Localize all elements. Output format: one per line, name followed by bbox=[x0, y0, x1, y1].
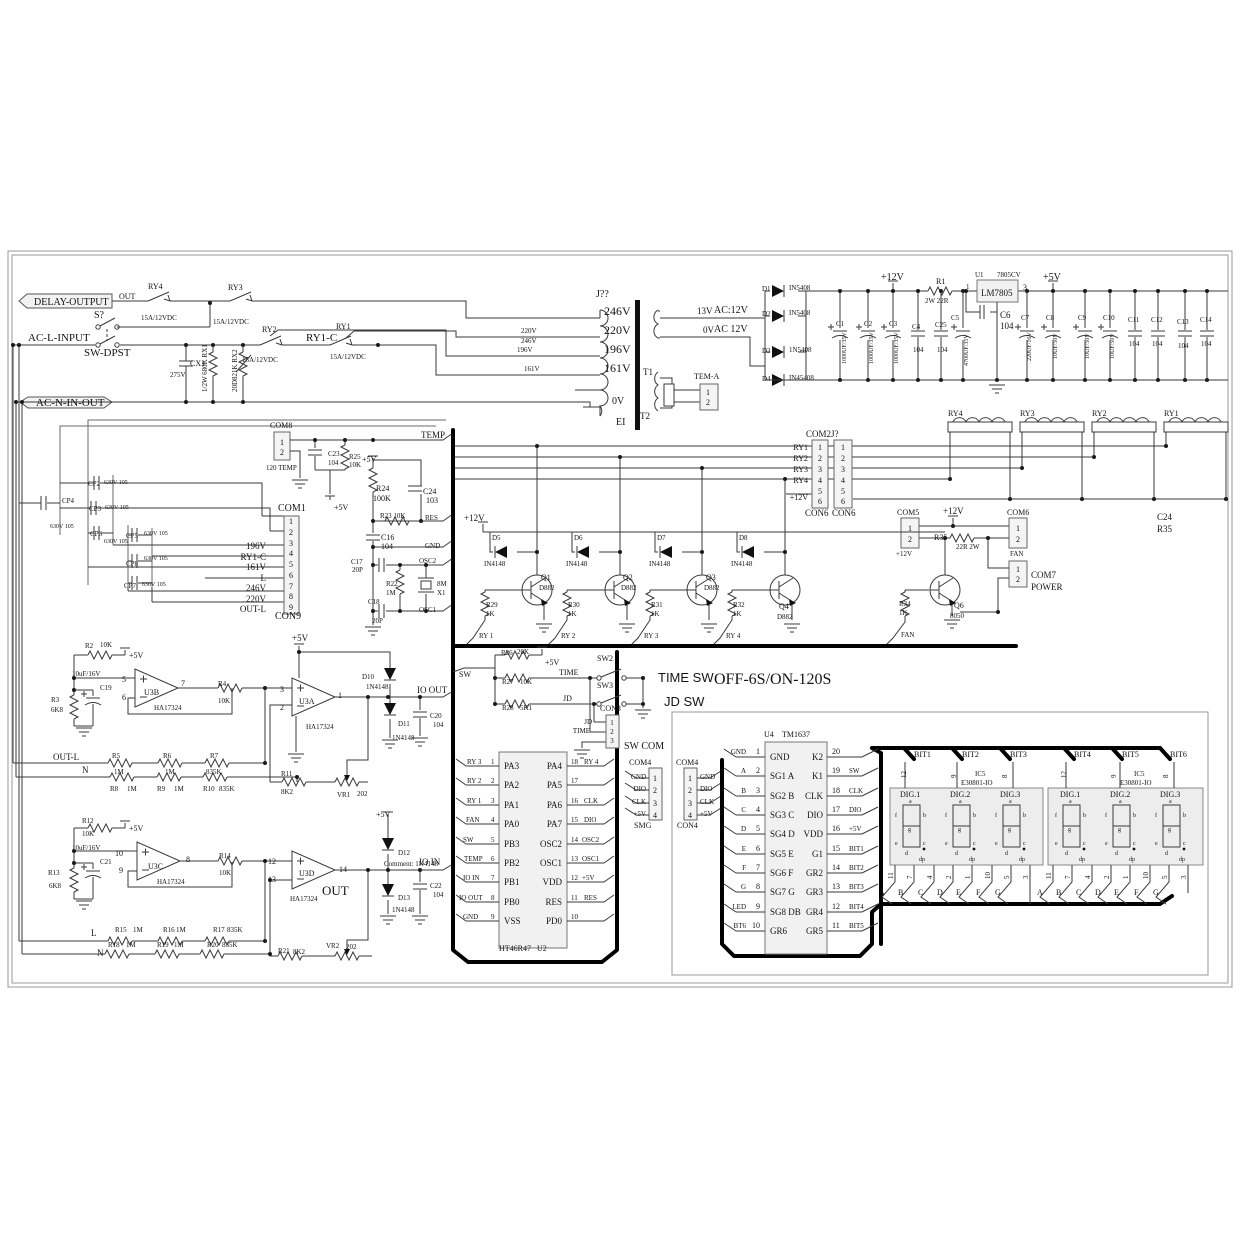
schematic-label: U1 bbox=[975, 271, 984, 279]
schematic-label: POWER bbox=[1031, 582, 1063, 592]
schematic-label: G bbox=[995, 888, 1001, 897]
schematic-label: 6 bbox=[818, 497, 822, 506]
schematic-label: 0V bbox=[612, 396, 625, 407]
schematic-label: 18 bbox=[832, 786, 840, 795]
schematic-label: e bbox=[945, 841, 948, 847]
schematic-label: 4 bbox=[926, 875, 934, 879]
junction-dot bbox=[263, 939, 267, 943]
schematic-label: GR4 bbox=[806, 907, 824, 917]
schematic-label: R35 bbox=[1157, 524, 1173, 534]
schematic-label: 12 bbox=[268, 857, 276, 866]
schematic-label: e bbox=[995, 841, 998, 847]
schematic-label: CP4 bbox=[62, 497, 75, 505]
schematic-label: 4 bbox=[688, 811, 692, 820]
schematic-label: 15 bbox=[571, 816, 579, 824]
schematic-label: D bbox=[937, 888, 943, 897]
schematic-label: GND bbox=[631, 773, 646, 781]
schematic-label: Q2 bbox=[623, 573, 633, 582]
schematic-label: 3 bbox=[610, 737, 614, 745]
schematic-label: AC-N-IN-OUT bbox=[36, 397, 105, 409]
schematic-label: 1 bbox=[338, 691, 342, 700]
schematic-label: 5 bbox=[289, 560, 293, 569]
schematic-label: +5V bbox=[129, 651, 144, 660]
schematic-label: 1 bbox=[289, 517, 293, 526]
schematic-label: 8K2 bbox=[281, 788, 294, 796]
schematic-label: RY2 bbox=[793, 454, 808, 463]
junction-dot bbox=[493, 702, 497, 706]
schematic-label: OSC1 bbox=[582, 855, 600, 863]
schematic-label: IN5408 bbox=[789, 309, 811, 317]
junction-dot bbox=[376, 343, 380, 347]
junction-dot bbox=[398, 563, 402, 567]
schematic-label: 630V 105 bbox=[144, 556, 168, 562]
schematic-label: GND bbox=[463, 913, 478, 921]
schematic-label: D882 bbox=[621, 584, 637, 592]
schematic-label: IC5 bbox=[975, 770, 986, 778]
schematic-label: 20P bbox=[372, 617, 383, 625]
schematic-label: DELAY-OUTPUT bbox=[34, 297, 109, 308]
schematic-label: HA17324 bbox=[306, 723, 334, 731]
junction-dot bbox=[11, 343, 15, 347]
schematic-label: EI bbox=[616, 417, 625, 428]
junction-dot bbox=[783, 550, 787, 554]
schematic-label: 9 bbox=[756, 902, 760, 911]
schematic-label: 1K bbox=[486, 610, 495, 618]
schematic-label: dp bbox=[1179, 857, 1185, 863]
schematic-label: 10 bbox=[984, 872, 992, 880]
schematic-label: 3 bbox=[1180, 875, 1188, 879]
schematic-label: 2 bbox=[818, 454, 822, 463]
schematic-label: Q6 bbox=[954, 601, 964, 610]
schematic-label: E bbox=[742, 845, 746, 853]
junction-dot bbox=[72, 849, 76, 853]
schematic-label: IC5 bbox=[1134, 770, 1145, 778]
schematic-label: E bbox=[1114, 888, 1119, 897]
schematic-label: COM8 bbox=[270, 421, 292, 430]
schematic-label: 13 bbox=[571, 855, 579, 863]
schematic-label: DIO bbox=[807, 810, 823, 820]
junction-dot bbox=[1051, 289, 1055, 293]
schematic-label: PA0 bbox=[504, 819, 520, 829]
schematic-label: DIG.1 bbox=[900, 790, 920, 799]
schematic-label: 7 bbox=[756, 863, 760, 872]
schematic-label: X1 bbox=[437, 589, 446, 597]
schematic-label: SG1 A bbox=[770, 771, 795, 781]
schematic-label: 1M bbox=[126, 941, 137, 949]
junction-dot bbox=[1108, 289, 1112, 293]
schematic-label: 14 bbox=[571, 836, 579, 844]
schematic-label: a bbox=[1119, 799, 1122, 805]
schematic-label: BIT6 bbox=[1170, 750, 1187, 759]
schematic-label: 5 bbox=[491, 836, 495, 844]
schematic-label: C3 bbox=[889, 320, 898, 328]
schematic-label: 246V bbox=[521, 337, 537, 345]
schematic-label: 16 bbox=[571, 797, 579, 805]
schematic-label: GND bbox=[731, 748, 746, 756]
schematic-label: RY 1 bbox=[479, 632, 494, 640]
schematic-label: 2 bbox=[688, 786, 692, 795]
schematic-label: 2 bbox=[908, 535, 912, 544]
schematic-label: 8 bbox=[1162, 774, 1170, 778]
schematic-label: CLK bbox=[849, 787, 863, 795]
schematic-label: 10K bbox=[349, 461, 361, 469]
schematic-label: COM2J? bbox=[806, 429, 839, 439]
schematic-label: CON3 bbox=[600, 704, 621, 713]
junction-dot bbox=[1020, 466, 1024, 470]
schematic-label: 16 bbox=[832, 824, 840, 833]
junction-dot bbox=[211, 400, 215, 404]
schematic-label: U3B bbox=[144, 688, 159, 697]
schematic-label: G bbox=[1153, 888, 1159, 897]
schematic-label: C bbox=[741, 806, 746, 814]
schematic-label: 1000UF/35V bbox=[842, 332, 848, 364]
schematic-label: 10UF/50V bbox=[1110, 333, 1116, 359]
junction-dot bbox=[943, 536, 947, 540]
schematic-label: 1N5408 bbox=[789, 346, 812, 354]
schematic-label: HT46R47 bbox=[499, 944, 531, 953]
schematic-label: 10 bbox=[115, 849, 123, 858]
schematic-label: 20D821K RX2 bbox=[231, 349, 239, 392]
schematic-label: RY4 bbox=[793, 476, 808, 485]
schematic-label: D5 bbox=[492, 534, 501, 542]
schematic-label: RY4 bbox=[148, 282, 163, 291]
schematic-label: GND bbox=[770, 752, 790, 762]
junction-dot bbox=[366, 868, 370, 872]
schematic-label: B bbox=[898, 888, 903, 897]
schematic-label: C10 bbox=[1103, 314, 1115, 322]
junction-dot bbox=[386, 695, 390, 699]
schematic-label: 7 bbox=[491, 874, 495, 882]
schematic-label: RY1 bbox=[336, 322, 351, 331]
schematic-label: e bbox=[1055, 841, 1058, 847]
schematic-label: g bbox=[1008, 827, 1011, 833]
schematic-label: BIT4 bbox=[1074, 750, 1091, 759]
schematic-label: T2 bbox=[640, 411, 650, 421]
schematic-label: 14 bbox=[832, 863, 840, 872]
schematic-label: +5V bbox=[582, 874, 595, 882]
schematic-label: 10K bbox=[82, 830, 94, 838]
schematic-label: 630V 105 bbox=[144, 531, 168, 537]
schematic-label: 2W 22R bbox=[925, 297, 949, 305]
schematic-label: A bbox=[1037, 888, 1043, 897]
schematic-label: b bbox=[1083, 813, 1086, 819]
schematic-label: g bbox=[1068, 827, 1071, 833]
schematic-label: R14 bbox=[219, 852, 231, 860]
schematic-label: RY 1 bbox=[467, 797, 482, 805]
schematic-label: D11 bbox=[398, 720, 410, 728]
schematic-label: JD bbox=[584, 718, 592, 726]
schematic-label: 1N4148 bbox=[392, 906, 415, 914]
schematic-label: 1/2W 680K RX1 bbox=[201, 344, 209, 392]
schematic-label: BIT3 bbox=[1010, 750, 1027, 759]
schematic-label: OUT bbox=[322, 883, 349, 898]
schematic-label: PB2 bbox=[504, 858, 520, 868]
schematic-label: PA4 bbox=[547, 761, 563, 771]
schematic-label: 6 bbox=[122, 693, 126, 702]
schematic-label: CP7 bbox=[124, 582, 137, 590]
junction-dot bbox=[618, 550, 622, 554]
junction-dot bbox=[1224, 497, 1228, 501]
schematic-label: 13 bbox=[832, 882, 840, 891]
schematic-label: 630V 105 bbox=[50, 524, 74, 530]
schematic-label: OSC1 bbox=[419, 606, 437, 614]
schematic-label: 5 bbox=[1161, 875, 1169, 879]
schematic-label: TEMP bbox=[464, 855, 483, 863]
schematic-label: RY 3 bbox=[644, 632, 659, 640]
schematic-label: VR1 bbox=[337, 791, 351, 799]
junction-dot bbox=[72, 861, 76, 865]
schematic-label: 1M bbox=[165, 768, 176, 776]
schematic-label: +12V bbox=[896, 550, 912, 558]
schematic-label: R34 bbox=[899, 600, 911, 608]
junction-dot bbox=[1083, 289, 1087, 293]
schematic-label: 11 bbox=[1045, 872, 1053, 879]
schematic-label: TIME SW bbox=[658, 670, 714, 685]
schematic-label: 5 bbox=[1003, 875, 1011, 879]
schematic-label: 161V bbox=[246, 562, 267, 572]
junction-dot bbox=[964, 289, 968, 293]
schematic-label: c bbox=[1133, 841, 1136, 847]
schematic-label: e bbox=[1105, 841, 1108, 847]
junction-dot bbox=[366, 695, 370, 699]
schematic-label: 1K bbox=[568, 610, 577, 618]
schematic-label: 1 bbox=[964, 875, 972, 879]
schematic-label: JD SW bbox=[664, 694, 705, 709]
schematic-label: D6 bbox=[574, 534, 583, 542]
schematic-label: 246V bbox=[246, 583, 267, 593]
schematic-label: HA17324 bbox=[154, 704, 182, 712]
schematic-label: c bbox=[923, 841, 926, 847]
schematic-label: SW3 bbox=[597, 681, 613, 690]
schematic-label: SG4 D bbox=[770, 829, 795, 839]
junction-dot bbox=[263, 761, 267, 765]
schematic-label: 7 bbox=[906, 875, 914, 879]
schematic-label: 104 bbox=[1152, 340, 1163, 348]
schematic-label: d bbox=[1065, 851, 1068, 857]
schematic-label: SW COM bbox=[624, 741, 664, 752]
junction-dot bbox=[1133, 378, 1137, 382]
schematic-label: A bbox=[741, 767, 746, 775]
schematic-label: T1 bbox=[643, 367, 653, 377]
schematic-label: SG7 G bbox=[770, 887, 795, 897]
junction-dot bbox=[268, 878, 272, 882]
schematic-label: f bbox=[895, 812, 897, 819]
schematic-label: +5V bbox=[334, 503, 349, 512]
schematic-label: C14 bbox=[1200, 316, 1212, 324]
schematic-label: C4 bbox=[912, 323, 921, 331]
schematic-label: C2 bbox=[864, 320, 873, 328]
schematic-label: CLK bbox=[584, 797, 598, 805]
schematic-label: SMG bbox=[634, 821, 652, 830]
schematic-label: TEMP bbox=[421, 430, 445, 440]
schematic-label: BIT2 bbox=[962, 750, 979, 759]
schematic-label: IO IN bbox=[419, 857, 441, 867]
schematic-label: 246V bbox=[604, 304, 631, 318]
schematic-label: R16 bbox=[163, 926, 175, 934]
schematic-label: 14 bbox=[339, 865, 347, 874]
schematic-label: dp bbox=[1079, 857, 1085, 863]
schematic-label: R30 bbox=[568, 601, 580, 609]
schematic-label: HA17324 bbox=[157, 878, 185, 886]
schematic-label: G bbox=[741, 883, 746, 891]
junction-dot bbox=[398, 609, 402, 613]
schematic-label: IN45408 bbox=[789, 374, 814, 382]
schematic-label: RY2 bbox=[1092, 409, 1107, 418]
schematic-label: D882 bbox=[704, 584, 720, 592]
schematic-label: 8 bbox=[756, 882, 760, 891]
junction-dot bbox=[838, 289, 842, 293]
junction-dot bbox=[371, 609, 375, 613]
schematic-label: 3 bbox=[1022, 875, 1030, 879]
schematic-label: DIO bbox=[584, 816, 596, 824]
schematic-label: SG8 DB bbox=[770, 907, 801, 917]
schematic-label: R24 bbox=[376, 484, 389, 493]
schematic-label: dp bbox=[919, 857, 925, 863]
schematic-label: R28 bbox=[502, 704, 514, 712]
schematic-label: 10UF/50V bbox=[1053, 333, 1059, 359]
schematic-label: 3 bbox=[491, 797, 495, 805]
schematic-label: A bbox=[879, 888, 885, 897]
schematic-label: D4 bbox=[762, 375, 771, 383]
schematic-label: PA5 bbox=[547, 780, 563, 790]
schematic-label: a bbox=[1169, 799, 1172, 805]
schematic-label: 1 bbox=[1016, 565, 1020, 574]
schematic-label: 835K bbox=[219, 785, 235, 793]
schematic-label: SW bbox=[849, 767, 860, 775]
schematic-label: Q3 bbox=[706, 573, 716, 582]
schematic-label: 220V bbox=[246, 594, 267, 604]
schematic-label: RY1-C bbox=[306, 332, 337, 344]
schematic-label: 8050 bbox=[950, 612, 965, 620]
schematic-label: f bbox=[1055, 812, 1057, 819]
schematic-label: C1 bbox=[836, 320, 845, 328]
schematic-label: R15 bbox=[115, 926, 127, 934]
schematic-label: C bbox=[1076, 888, 1081, 897]
schematic-label: RY4 bbox=[948, 409, 963, 418]
schematic-label: 1 bbox=[688, 774, 692, 783]
junction-dot bbox=[641, 676, 645, 680]
schematic-label: 2 bbox=[610, 728, 614, 736]
schematic-label: f bbox=[945, 812, 947, 819]
schematic-label: 17 bbox=[571, 777, 579, 785]
schematic-label: PA2 bbox=[504, 780, 519, 790]
schematic-label: 2 bbox=[1016, 535, 1020, 544]
schematic-label: C12 bbox=[1151, 316, 1163, 324]
schematic-label: 3 bbox=[841, 465, 845, 474]
schematic-label: 1 bbox=[280, 438, 284, 447]
schematic-page: DELAY-OUTPUTOUTS?RY415A/12VDCRY315A/12VD… bbox=[0, 0, 1240, 1240]
junction-dot bbox=[986, 536, 990, 540]
schematic-label: +5V bbox=[362, 455, 377, 464]
schematic-label: 630V 105 bbox=[142, 582, 166, 588]
schematic-label: 20 bbox=[832, 747, 840, 756]
schematic-label: AC:12V bbox=[714, 305, 749, 316]
schematic-label: J?? bbox=[596, 289, 609, 300]
schematic-label: 196V bbox=[246, 541, 267, 551]
schematic-label: d bbox=[1165, 851, 1168, 857]
schematic-label: 1 bbox=[706, 388, 710, 397]
schematic-label: R11 bbox=[281, 770, 293, 778]
schematic-label: d bbox=[955, 851, 958, 857]
schematic-label: C9 bbox=[1078, 314, 1087, 322]
junction-dot bbox=[641, 702, 645, 706]
schematic-label: COM4 bbox=[676, 758, 698, 767]
schematic-label: 2 bbox=[289, 528, 293, 537]
junction-dot bbox=[263, 859, 267, 863]
schematic-label: IN4148 bbox=[731, 560, 753, 568]
schematic-label: LM7805 bbox=[981, 288, 1013, 298]
schematic-label: 1M bbox=[174, 785, 185, 793]
schematic-label: 10 bbox=[1142, 872, 1150, 880]
junction-dot bbox=[838, 378, 842, 382]
junction-dot bbox=[241, 343, 245, 347]
schematic-label: 17 bbox=[832, 805, 840, 814]
schematic-label: RY1 bbox=[793, 443, 808, 452]
junction-dot bbox=[1183, 289, 1187, 293]
schematic-label: C bbox=[918, 888, 923, 897]
schematic-label: 0V bbox=[703, 325, 715, 335]
schematic-label: E30801-IO bbox=[961, 779, 993, 787]
schematic-label: CLK bbox=[632, 798, 646, 806]
schematic-label: D bbox=[741, 825, 746, 833]
schematic-label: C24 bbox=[423, 487, 436, 496]
junction-dot bbox=[313, 438, 317, 442]
schematic-label: 1K bbox=[733, 610, 742, 618]
junction-dot bbox=[592, 702, 596, 706]
schematic-label: C11 bbox=[1128, 316, 1140, 324]
schematic-label: c bbox=[1083, 841, 1086, 847]
schematic-label: 630V 105 bbox=[105, 505, 129, 511]
schematic-label: 1 bbox=[1016, 524, 1020, 533]
schematic-label: VR2 bbox=[326, 942, 340, 950]
schematic-label: 1M bbox=[133, 926, 144, 934]
schematic-label: TEM-A bbox=[694, 372, 720, 381]
schematic-label: 3 bbox=[818, 465, 822, 474]
schematic-label: 196V bbox=[604, 342, 631, 356]
schematic-label: 6 bbox=[756, 844, 760, 853]
schematic-label: LED bbox=[732, 903, 746, 911]
schematic-label: 20K bbox=[517, 648, 529, 656]
schematic-label: 1K bbox=[651, 610, 660, 618]
schematic-label: 12 bbox=[571, 874, 579, 882]
schematic-label: R10 bbox=[203, 785, 215, 793]
schematic-label: U3C bbox=[148, 862, 163, 871]
schematic-label: 104 bbox=[433, 891, 444, 899]
schematic-label: CP2 bbox=[88, 480, 101, 488]
schematic-label: AC-L-INPUT bbox=[28, 332, 90, 344]
schematic-label: 835K bbox=[222, 941, 238, 949]
junction-dot bbox=[211, 343, 215, 347]
schematic-label: C24 bbox=[1157, 512, 1173, 522]
schematic-label: RY3 bbox=[793, 465, 808, 474]
schematic-label: PA6 bbox=[547, 800, 563, 810]
schematic-label: 3 bbox=[280, 685, 284, 694]
schematic-label: b bbox=[923, 813, 926, 819]
schematic-label: R2 bbox=[85, 642, 94, 650]
schematic-label: 11 bbox=[571, 894, 578, 902]
junction-dot bbox=[297, 650, 301, 654]
schematic-label: TIME bbox=[559, 668, 579, 677]
schematic-label: 9 bbox=[119, 866, 123, 875]
schematic-label: 161V bbox=[524, 365, 540, 373]
junction-dot bbox=[343, 438, 347, 442]
junction-dot bbox=[1205, 378, 1209, 382]
schematic-label: f bbox=[1155, 812, 1157, 819]
schematic-label: 8M bbox=[437, 580, 448, 588]
schematic-label: D8 bbox=[739, 534, 748, 542]
schematic-label: TIME bbox=[573, 727, 590, 735]
junction-dot bbox=[14, 400, 18, 404]
